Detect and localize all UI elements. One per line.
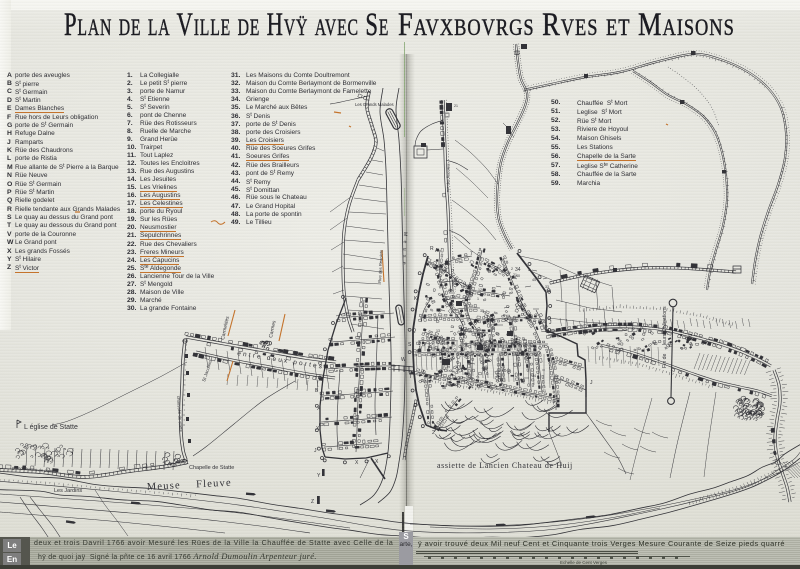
svg-text:R: R	[430, 246, 434, 252]
svg-text:48: 48	[487, 269, 491, 273]
svg-text:W: W	[401, 357, 406, 363]
svg-text:6: 6	[455, 279, 457, 283]
svg-text:L église de Statte: L église de Statte	[24, 424, 78, 431]
svg-text:27: 27	[447, 351, 451, 355]
svg-text:Les Grands Malades: Les Grands Malades	[355, 102, 394, 107]
svg-text:Y: Y	[317, 473, 321, 479]
svg-text:J: J	[549, 320, 552, 326]
svg-text:Fin de: Fin de	[662, 353, 668, 368]
svg-text:7: 7	[470, 251, 473, 257]
svg-text:Chapelle de Statte: Chapelle de Statte	[189, 465, 234, 471]
svg-text:23: 23	[504, 389, 508, 393]
svg-text:B: B	[315, 388, 319, 394]
svg-text:Meuse Fleuve: Meuse Fleuve	[147, 478, 233, 493]
svg-text:X: X	[355, 460, 359, 466]
svg-text:21: 21	[454, 104, 458, 108]
svg-text:Carmelites: Carmelites	[220, 315, 231, 340]
svg-text:25: 25	[444, 342, 448, 346]
svg-text:2: 2	[511, 267, 513, 271]
svg-text:T: T	[409, 374, 412, 380]
svg-text:13: 13	[468, 330, 472, 334]
svg-text:34: 34	[469, 385, 473, 389]
svg-text:Q: Q	[412, 328, 416, 334]
svg-text:Rue des Recolets: Rue des Recolets	[377, 250, 384, 283]
svg-text:Carmes: Carmes	[268, 320, 278, 339]
svg-text:Z: Z	[311, 499, 314, 505]
svg-text:St Jacobins: St Jacobins	[201, 358, 213, 382]
svg-text:45: 45	[532, 278, 536, 282]
svg-text:21: 21	[513, 273, 517, 277]
svg-text:26: 26	[452, 295, 456, 299]
svg-text:13: 13	[436, 329, 440, 333]
svg-text:X: X	[375, 459, 379, 465]
svg-text:G: G	[334, 368, 338, 374]
svg-text:14: 14	[532, 374, 536, 378]
svg-text:Les Jardins: Les Jardins	[54, 488, 82, 494]
svg-text:M e u s e: M e u s e	[401, 232, 408, 266]
svg-text:2: 2	[432, 430, 435, 436]
svg-text:6: 6	[436, 317, 438, 321]
svg-text:44: 44	[458, 312, 462, 316]
svg-text:14: 14	[478, 334, 484, 340]
svg-text:V: V	[419, 346, 423, 352]
svg-text:leurs Obligations: leurs Obligations	[662, 306, 668, 345]
svg-text:S: S	[408, 342, 412, 348]
svg-text:24: 24	[501, 365, 505, 369]
svg-text:33: 33	[545, 285, 549, 289]
svg-text:1: 1	[477, 297, 479, 301]
svg-text:41: 41	[542, 389, 546, 393]
svg-text:48: 48	[537, 340, 541, 344]
svg-text:rue des Recolets: rue des Recolets	[446, 163, 450, 192]
svg-text:J: J	[314, 448, 317, 454]
svg-text:40: 40	[489, 317, 493, 321]
svg-text:8: 8	[445, 384, 447, 388]
svg-text:39: 39	[446, 365, 450, 369]
svg-text:35: 35	[480, 309, 484, 313]
svg-text:assiette de Lancien Chateau de: assiette de Lancien Chateau de Huij	[437, 461, 573, 470]
svg-text:12: 12	[478, 288, 482, 292]
svg-text:J: J	[590, 380, 593, 386]
